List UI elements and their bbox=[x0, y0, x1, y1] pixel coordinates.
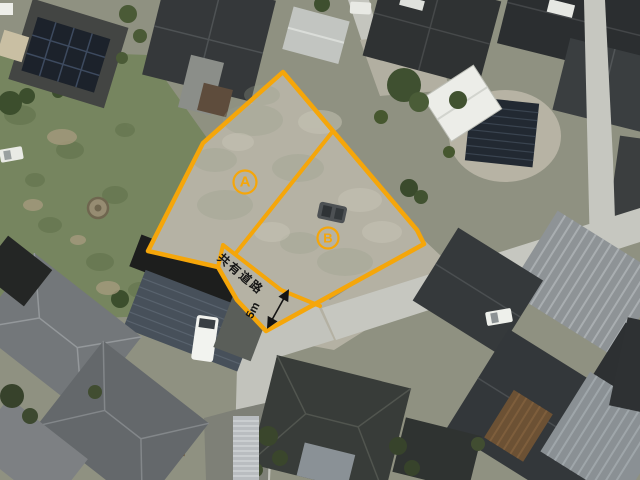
white-car-top bbox=[350, 1, 372, 14]
long-corrugated-shed bbox=[233, 416, 259, 480]
parcel-a-label: A bbox=[240, 174, 251, 191]
white-object-topleft bbox=[0, 3, 13, 15]
aerial-photo-view: A B 共有道路 5m bbox=[0, 0, 640, 480]
satellite-image: A B 共有道路 5m bbox=[0, 0, 640, 480]
satellite-photo bbox=[0, 0, 640, 480]
parcel-b-label: B bbox=[323, 231, 332, 246]
